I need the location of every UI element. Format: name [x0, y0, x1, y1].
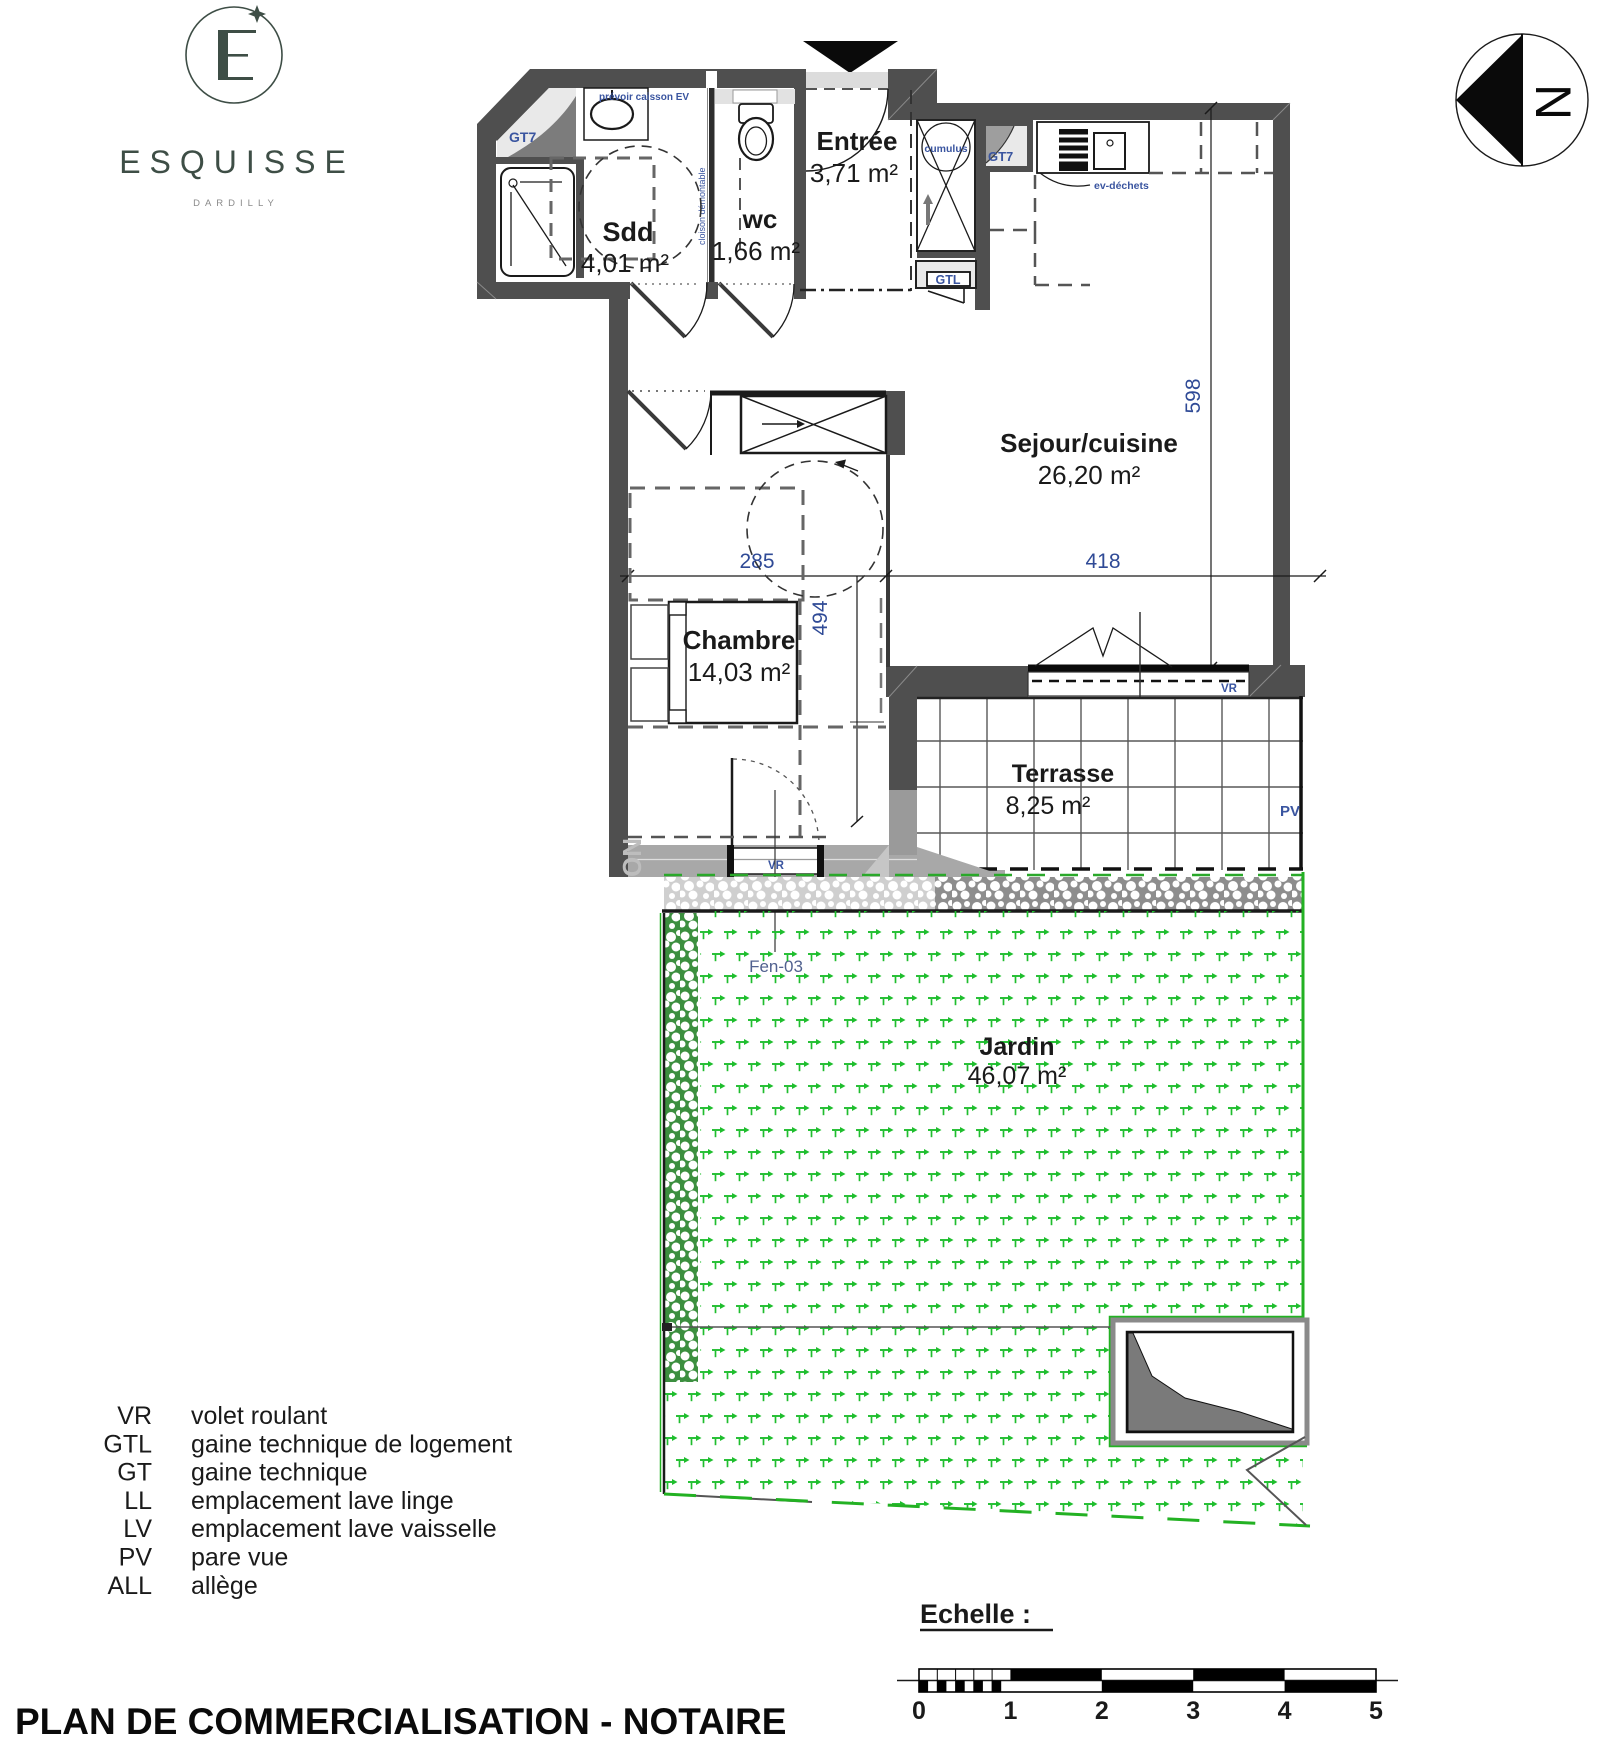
svg-text:GTL: GTL [936, 273, 961, 287]
svg-text:gaine technique de logement: gaine technique de logement [191, 1430, 512, 1458]
svg-text:VR: VR [117, 1402, 152, 1430]
svg-text:ESQUISSE: ESQUISSE [119, 144, 355, 180]
svg-text:LV: LV [123, 1515, 152, 1543]
svg-text:26,20 m²: 26,20 m² [1038, 460, 1141, 490]
svg-text:GTL: GTL [103, 1430, 152, 1458]
svg-text:volet roulant: volet roulant [191, 1402, 327, 1430]
svg-text:Jardin: Jardin [979, 1033, 1054, 1061]
svg-text:LL: LL [124, 1487, 152, 1515]
svg-text:46,07 m²: 46,07 m² [968, 1062, 1067, 1090]
svg-text:allège: allège [191, 1572, 258, 1600]
svg-text:598: 598 [1182, 378, 1205, 413]
svg-text:5: 5 [1369, 1697, 1383, 1725]
svg-text:ALL: ALL [108, 1572, 153, 1600]
svg-text:Sdd: Sdd [603, 217, 654, 247]
svg-text:cloison démontable: cloison démontable [697, 167, 707, 245]
svg-text:0: 0 [912, 1697, 926, 1725]
svg-text:GT: GT [117, 1459, 152, 1487]
svg-text:prévoir caisson EV: prévoir caisson EV [599, 92, 689, 103]
svg-text:Echelle :: Echelle : [920, 1599, 1031, 1629]
svg-text:418: 418 [1085, 550, 1120, 573]
svg-text:emplacement lave vaisselle: emplacement lave vaisselle [191, 1515, 497, 1543]
svg-text:DARDILLY: DARDILLY [193, 198, 279, 209]
svg-text:PV: PV [119, 1544, 153, 1572]
svg-text:VR: VR [768, 860, 785, 872]
svg-text:Entrée: Entrée [817, 126, 898, 156]
svg-text:VR: VR [1221, 683, 1238, 695]
svg-text:2: 2 [1095, 1697, 1109, 1725]
svg-text:N: N [1525, 84, 1581, 120]
svg-text:PLAN DE COMMERCIALISATION - NO: PLAN DE COMMERCIALISATION - NOTAIRE [15, 1701, 787, 1740]
svg-text:1,66 m²: 1,66 m² [712, 236, 800, 266]
svg-text:Sejour/cuisine: Sejour/cuisine [1000, 428, 1178, 458]
svg-text:GT7: GT7 [509, 129, 536, 145]
svg-text:ON: ON [617, 838, 647, 877]
svg-text:1: 1 [1003, 1697, 1017, 1725]
svg-text:gaine technique: gaine technique [191, 1459, 368, 1487]
svg-text:GT7: GT7 [988, 149, 1013, 164]
svg-text:ev-déchets: ev-déchets [1094, 180, 1149, 192]
svg-text:8,25 m²: 8,25 m² [1006, 792, 1091, 820]
svg-text:PV: PV [1280, 803, 1300, 820]
svg-text:4: 4 [1278, 1697, 1292, 1725]
svg-text:3: 3 [1186, 1697, 1200, 1725]
svg-text:494: 494 [809, 600, 832, 635]
svg-text:cumulus: cumulus [924, 143, 967, 155]
svg-text:285: 285 [739, 550, 774, 573]
svg-text:14,03 m²: 14,03 m² [688, 657, 791, 687]
svg-text:emplacement lave linge: emplacement lave linge [191, 1487, 454, 1515]
svg-text:pare vue: pare vue [191, 1544, 288, 1572]
svg-text:4,01 m²: 4,01 m² [581, 248, 669, 278]
svg-text:3,71 m²: 3,71 m² [810, 158, 898, 188]
svg-text:Chambre: Chambre [683, 625, 796, 655]
svg-text:wc: wc [742, 204, 778, 234]
svg-text:Terrasse: Terrasse [1012, 760, 1114, 788]
